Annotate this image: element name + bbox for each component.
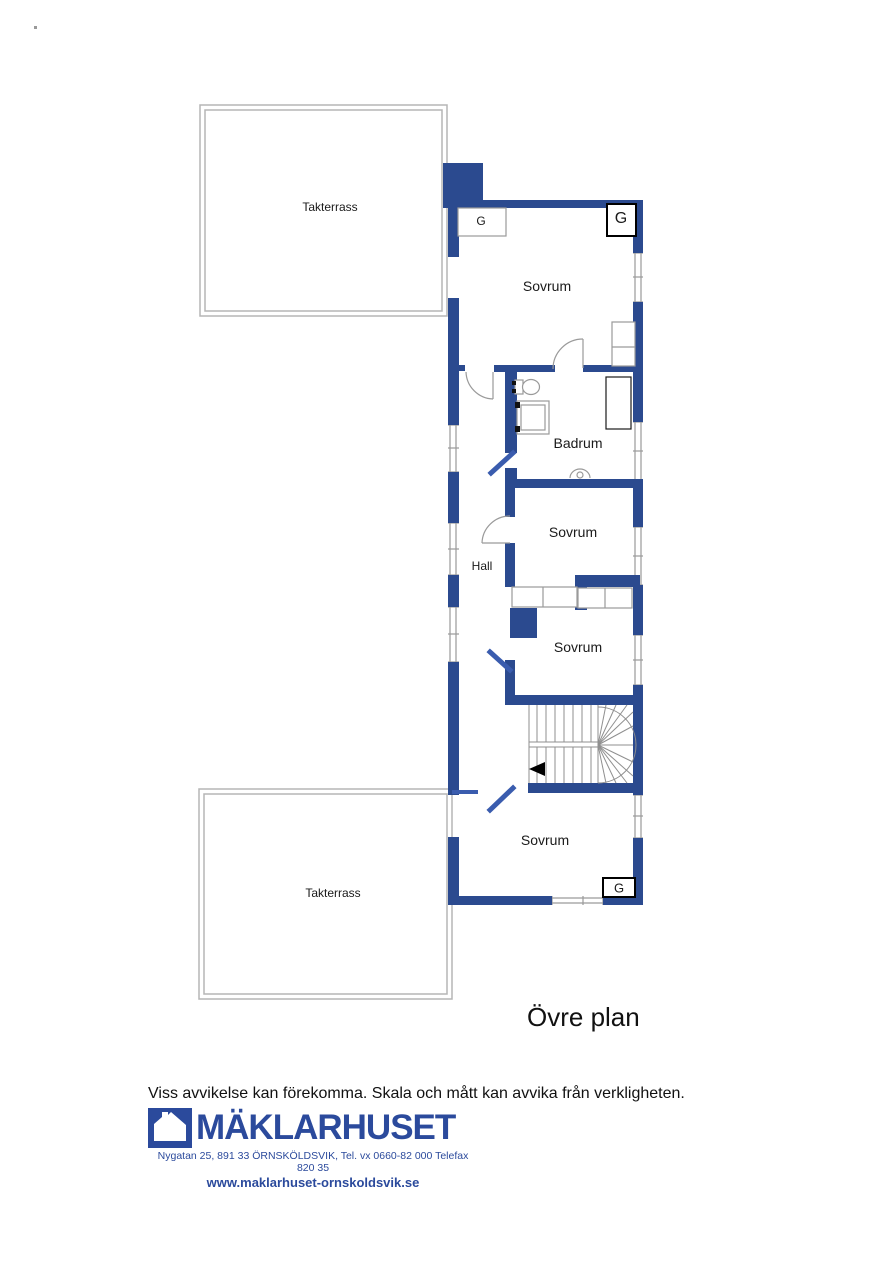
door-bottom-threshold (452, 790, 478, 794)
brand-address: Nygatan 25, 891 33 ÖRNSKÖLDSVIK, Tel. vx… (148, 1150, 478, 1174)
closet-row-mid-right (578, 588, 632, 608)
floorplan-page: Takterrass Sovrum G G Badrum Sovrum Hall… (0, 0, 894, 1280)
window-right-1 (633, 253, 643, 302)
window-left-2 (448, 523, 459, 575)
room-label-sovrum-top: Sovrum (523, 278, 571, 294)
sink-icon (570, 469, 590, 478)
house-icon (148, 1108, 192, 1148)
bathroom-fixtures (512, 380, 590, 479)
brand-logo: MÄKLARHUSET Nygatan 25, 891 33 ÖRNSKÖLDS… (148, 1108, 478, 1190)
closet-label-top-left: G (476, 214, 485, 228)
window-right-2 (633, 422, 643, 480)
furniture-bedroom-top (612, 322, 635, 366)
closets-furniture (458, 204, 636, 897)
closet-row-mid-left (512, 587, 577, 607)
door-bedroom-mid (482, 516, 510, 543)
disclaimer-text: Viss avvikelse kan förekomma. Skala och … (148, 1085, 685, 1103)
window-bottom (552, 896, 603, 905)
floor-title: Övre plan (527, 1002, 640, 1033)
window-left-3 (448, 607, 459, 662)
door-bedroom-top-east (553, 339, 583, 369)
window-right-5 (633, 795, 643, 838)
door-bedroom-top-west (466, 372, 493, 399)
door-bedroom-bottom-leaf (490, 788, 513, 810)
room-label-sovrum-mid: Sovrum (549, 524, 597, 540)
room-label-sovrum-bottom: Sovrum (521, 832, 569, 848)
toilet-icon (512, 380, 540, 395)
shower-icon (515, 401, 549, 434)
closet-label-top-right: G (615, 210, 627, 228)
closet-label-bottom-right: G (614, 881, 624, 896)
room-label-terrace-top: Takterrass (302, 200, 357, 214)
room-label-terrace-bottom: Takterrass (305, 886, 360, 900)
window-left-1 (448, 425, 459, 472)
room-label-sovrum-third: Sovrum (554, 639, 602, 655)
room-label-hall: Hall (472, 559, 493, 573)
room-label-badrum: Badrum (553, 435, 602, 451)
window-right-4 (633, 635, 643, 685)
staircase (529, 705, 636, 783)
wardrobe-bathroom (606, 377, 631, 429)
brand-website[interactable]: www.maklarhuset-ornskoldsvik.se (148, 1175, 478, 1190)
brand-name: MÄKLARHUSET (196, 1108, 455, 1148)
